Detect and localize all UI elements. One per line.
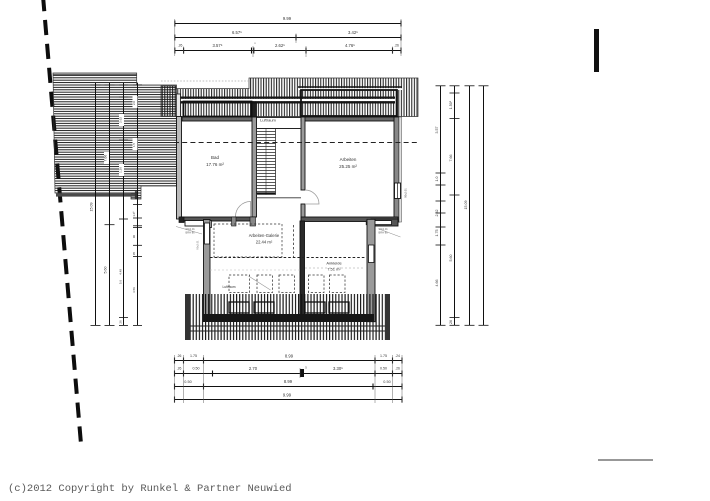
svg-text:.26: .26 (177, 367, 182, 371)
svg-text:2.62⁵: 2.62⁵ (275, 43, 285, 48)
svg-text:.26: .26 (395, 367, 400, 371)
svg-text:1.75: 1.75 (190, 354, 197, 358)
svg-text:26: 26 (449, 320, 453, 324)
svg-text:4.49: 4.49 (119, 269, 123, 275)
svg-text:15.09: 15.09 (90, 203, 94, 212)
svg-text:Arbeiten-Galerie: Arbeiten-Galerie (249, 233, 280, 238)
svg-text:90: 90 (132, 235, 136, 239)
svg-text:7.66: 7.66 (449, 155, 453, 162)
svg-text:3.30⁵: 3.30⁵ (333, 366, 343, 371)
svg-text:BRH 86: BRH 86 (379, 231, 389, 235)
svg-text:3.42⁵: 3.42⁵ (348, 30, 358, 35)
svg-text:5.60: 5.60 (449, 255, 453, 262)
svg-text:0.50: 0.50 (193, 367, 200, 371)
svg-text:.26: .26 (394, 44, 399, 48)
svg-text:17.76 m²: 17.76 m² (206, 162, 224, 167)
svg-text:25.25 m²: 25.25 m² (339, 164, 357, 169)
svg-text:8.99: 8.99 (284, 379, 293, 384)
svg-text:90x2.01: 90x2.01 (196, 240, 200, 250)
svg-text:0.50: 0.50 (383, 380, 390, 384)
svg-text:2.70: 2.70 (249, 366, 258, 371)
svg-text:Bad: Bad (211, 155, 220, 160)
svg-text:3.57⁵: 3.57⁵ (213, 43, 223, 48)
svg-text:1.75: 1.75 (435, 230, 439, 237)
svg-text:.24: .24 (395, 354, 400, 358)
svg-text:(c)2012 Copyright by Runkel &: (c)2012 Copyright by Runkel & Partner Ne… (8, 483, 292, 495)
svg-text:1.0: 1.0 (435, 177, 439, 182)
svg-text:0.50: 0.50 (380, 367, 387, 371)
svg-text:3.59: 3.59 (132, 287, 136, 293)
svg-text:Ankleide: Ankleide (326, 261, 342, 266)
svg-text:3.57: 3.57 (435, 127, 439, 134)
svg-text:7.51 m²: 7.51 m² (327, 267, 341, 272)
svg-text:95: 95 (132, 252, 136, 256)
svg-text:4.66: 4.66 (435, 280, 439, 287)
svg-text:2.0: 2.0 (132, 101, 136, 105)
svg-text:22.44 m²: 22.44 m² (256, 240, 273, 245)
svg-text:BRH 86: BRH 86 (186, 231, 196, 235)
svg-text:5.6: 5.6 (119, 280, 123, 285)
svg-text:Luftraum: Luftraum (260, 118, 276, 123)
svg-text:1.75: 1.75 (380, 354, 387, 358)
svg-text:26: 26 (119, 320, 123, 324)
svg-text:5.60: 5.60 (104, 267, 108, 274)
svg-text:7.66: 7.66 (104, 155, 108, 162)
svg-text:1.50⁵: 1.50⁵ (449, 100, 453, 109)
svg-text:Arbeiten: Arbeiten (340, 157, 357, 162)
svg-text:6.57⁵: 6.57⁵ (232, 30, 242, 35)
svg-text:9.99: 9.99 (283, 393, 292, 398)
svg-text:15.09: 15.09 (464, 201, 468, 210)
svg-text:2.62: 2.62 (119, 117, 123, 123)
svg-text:.26: .26 (177, 354, 182, 358)
svg-text:90x2.01: 90x2.01 (404, 188, 408, 198)
svg-text:4.76⁵: 4.76⁵ (345, 43, 355, 48)
svg-text:.26: .26 (178, 44, 183, 48)
svg-text:8.99: 8.99 (285, 354, 294, 359)
svg-text:9.99: 9.99 (283, 16, 292, 21)
svg-text:Luftraum: Luftraum (222, 285, 235, 289)
svg-text:0.50: 0.50 (184, 380, 191, 384)
svg-text:1.5: 1.5 (132, 143, 136, 147)
svg-text:1.0⁵: 1.0⁵ (132, 211, 136, 217)
svg-text:2.52: 2.52 (435, 210, 439, 217)
svg-text:1.26: 1.26 (119, 167, 123, 173)
